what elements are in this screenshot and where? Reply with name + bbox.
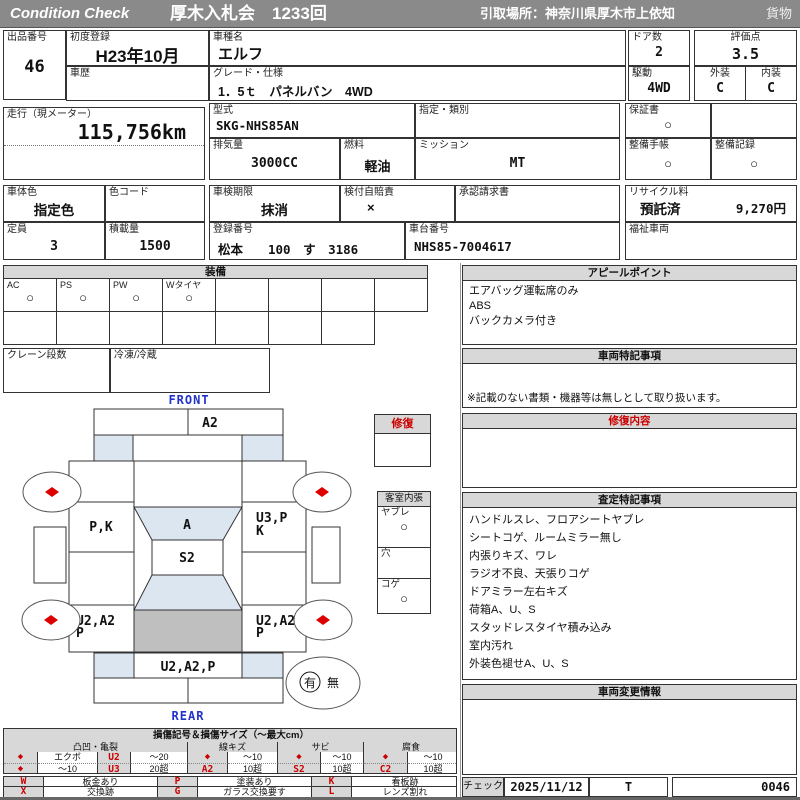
inspector-initial: T (590, 778, 667, 796)
presence-ellipse (286, 657, 360, 709)
legend-code-desc: 塗装あり (198, 777, 312, 787)
presence-no: 無 (327, 675, 339, 690)
auction-title: 厚木入札会 1233回 (170, 0, 327, 27)
equipment-cell-pw: PW ○ (109, 278, 163, 312)
legend-symbol: S2 (278, 763, 321, 774)
exterior-grade-label: 外装 (695, 67, 745, 81)
repair-content-title: 修復内容 (463, 414, 796, 429)
vehicle-changes-panel: 車両変更情報 (462, 684, 797, 775)
right-rear-mark-2: P (256, 626, 264, 641)
body-color-value: 指定色 (4, 199, 104, 219)
cabin-interior-label: 穴 (378, 548, 430, 561)
legend-value: 20超 (131, 763, 188, 774)
assessment-line: 荷箱A、U、S (469, 601, 790, 619)
equipment-mark: ○ (57, 291, 109, 304)
capacity-label: 定員 (4, 223, 104, 237)
equipment-cell-empty (215, 278, 269, 312)
insurance-mark: × (341, 200, 454, 215)
legend-category: 腐食 (364, 742, 457, 752)
damage-legend-title: 損傷記号＆損傷サイズ（～最大cm） (4, 729, 457, 743)
header-bar: Condition Check 厚木入札会 1233回 引取場所：神奈川県厚木市… (0, 0, 800, 28)
history-box: 車歴 (66, 66, 209, 101)
lot-number-box: 出品番号 46 (3, 30, 66, 100)
reefer-label: 冷凍/冷蔵 (111, 349, 269, 363)
legend-code: G (158, 787, 198, 797)
auction-condition-sheet: Condition Check 厚木入札会 1233回 引取場所：神奈川県厚木市… (0, 0, 800, 800)
lot-number-value: 46 (4, 57, 65, 77)
appeal-line: バックカメラ付き (469, 314, 790, 329)
legend-category: 線キズ (188, 742, 278, 752)
assessment-line: 室内汚れ (469, 637, 790, 655)
windshield-right (242, 435, 283, 461)
grade-box: グレード・仕様 1．5ｔ パネルバン 4WD (209, 66, 626, 101)
crane-box: クレーン段数 (3, 348, 110, 393)
equipment-mark: ○ (110, 291, 162, 304)
chassis-number-label: 車台番号 (406, 223, 619, 237)
inspection-box: 車検期限 抹消 (209, 185, 340, 222)
mileage-value: 115,756km (4, 120, 204, 144)
rear-panel-mark: U2,A2,P (161, 660, 216, 675)
doors-label: ドア数 (629, 31, 689, 45)
windshield-left (94, 435, 133, 461)
cabin-interior-mark: ○ (378, 520, 430, 533)
crane-label: クレーン段数 (4, 349, 109, 363)
damage-legend-table: 損傷記号＆損傷サイズ（～最大cm） 凸凹・亀裂 線キズ サビ 腐食 ◆ エクボ … (3, 728, 457, 774)
presence-yes: 有 (304, 676, 316, 690)
displacement-label: 排気量 (210, 139, 339, 153)
legend-value: ～10 (321, 752, 364, 763)
legend-code: X (4, 787, 44, 797)
score-value: 3.5 (695, 45, 796, 63)
equipment-cell-empty (109, 311, 163, 345)
appeal-panel: アピールポイント エアバッグ運転席のみ ABS バックカメラ付き (462, 265, 797, 345)
warranty-box: 保証書 ○ (625, 103, 711, 138)
legend-value: ～10 (408, 752, 457, 763)
color-code-box: 色コード (105, 185, 205, 222)
grade-value: 1．5ｔ パネルバン 4WD (210, 81, 625, 100)
inspection-value: 抹消 (210, 199, 339, 219)
maintenance-record-box: 整備記録 ○ (711, 138, 797, 180)
model-name-box: 車種名 エルフ (209, 30, 626, 66)
assessment-line: 内張りキズ、ワレ (469, 547, 790, 565)
pickup-location: 引取場所：神奈川県厚木市上依知 (480, 0, 675, 27)
classification-label: 指定・類別 (416, 104, 619, 118)
assessment-title: 査定特記事項 (463, 493, 796, 508)
inspector-cell: T (589, 777, 668, 797)
legend-symbol: A2 (188, 763, 228, 774)
repair-content-panel: 修復内容 (462, 413, 797, 488)
legend-code-desc: ガラス交換要す (198, 787, 312, 797)
insurance-label: 検付自賠責 (341, 186, 454, 200)
load-capacity-value: 1500 (106, 239, 204, 254)
doors-box: ドア数 2 (628, 30, 690, 66)
left-side-step (34, 527, 66, 583)
code-legend-table: W 板金あり P 塗装あり K 看板跡 X 交換跡 G ガラス交換要す L レン… (3, 776, 457, 798)
first-registration-value: H23年10月 (67, 42, 208, 67)
model-code-value: SKG-NHS85AN (210, 118, 414, 133)
equipment-mark: ○ (4, 291, 56, 304)
appeal-line: エアバッグ運転席のみ (469, 284, 790, 299)
equipment-cell-empty (56, 311, 110, 345)
drive-box: 駆動 4WD (628, 66, 690, 101)
assessment-line: ドアミラー左右キズ (469, 583, 790, 601)
legend-code: K (312, 777, 352, 787)
rear-label: REAR (172, 709, 205, 723)
brand-logo: Condition Check (10, 0, 129, 27)
cargo-bed-area (134, 610, 242, 652)
maintenance-book-mark: ○ (626, 157, 710, 170)
repair-flag-title: 修復 (375, 415, 430, 434)
legend-value: ～20 (131, 752, 188, 763)
score-box: 評価点 3.5 (694, 30, 797, 66)
legend-symbol: U3 (98, 763, 131, 774)
legend-value: エクボ (38, 752, 98, 763)
lot-number-label: 出品番号 (4, 31, 65, 45)
legend-symbol: U2 (98, 752, 131, 763)
body-color-label: 車体色 (4, 186, 104, 200)
approval-box: 承認請求書 (455, 185, 620, 222)
fuel-value: 軽油 (341, 156, 414, 175)
first-registration-box: 初度登録 H23年10月 (66, 30, 209, 66)
legend-code-desc: 看板跡 (352, 777, 457, 787)
equipment-cell-wtire: Wタイヤ ○ (162, 278, 216, 312)
chassis-number-box: 車台番号 NHS85-7004617 (405, 222, 620, 260)
load-capacity-label: 積載量 (106, 223, 204, 237)
doors-value: 2 (629, 45, 689, 60)
front-panel-mark: A2 (202, 416, 218, 431)
vehicle-notes-note: ※記載のない書類・機器等は無しとして取り扱います。 (467, 390, 726, 405)
legend-symbol: ◆ (188, 752, 228, 763)
legend-symbol: C2 (364, 763, 408, 774)
legend-symbol: ◆ (278, 752, 321, 763)
empty-box (711, 103, 797, 138)
legend-category: 凸凹・亀裂 (4, 742, 188, 752)
legend-category: サビ (278, 742, 364, 752)
vehicle-notes-title: 車両特記事項 (463, 349, 796, 364)
equipment-cell-empty (215, 311, 269, 345)
equipment-cell-empty (374, 278, 428, 312)
registration-number-label: 登録番号 (210, 223, 404, 237)
warranty-mark: ○ (626, 118, 710, 131)
equipment-cell-ps: PS ○ (56, 278, 110, 312)
insurance-box: 検付自賠責 × (340, 185, 455, 222)
assessment-line: 外装色褪せA、U、S (469, 655, 790, 673)
assessment-line: シートコゲ、ルームミラー無し (469, 529, 790, 547)
equipment-cell-empty (321, 278, 375, 312)
assessment-panel: 査定特記事項 ハンドルスレ、フロアシートヤブレ シートコゲ、ルームミラー無し 内… (462, 492, 797, 680)
left-door-mark: P,K (89, 520, 113, 535)
transmission-value: MT (416, 156, 619, 171)
sheet-number: 0046 (673, 778, 796, 796)
drive-value: 4WD (629, 81, 689, 96)
recycle-fee-box: リサイクル料 預託済 9,270円 (625, 185, 797, 222)
right-door-mark-2: K (256, 524, 264, 539)
history-label: 車歴 (67, 67, 208, 81)
color-code-label: 色コード (106, 186, 204, 200)
legend-value: ～10 (228, 752, 278, 763)
front-label: FRONT (168, 393, 209, 407)
model-name-value: エルフ (210, 43, 625, 64)
check-date-cell: 2025/11/12 (504, 777, 589, 797)
inspection-label: 車検期限 (210, 186, 339, 200)
grade-label: グレード・仕様 (210, 67, 625, 81)
column-divider (460, 263, 461, 797)
displacement-box: 排気量 3000CC (209, 138, 340, 180)
displacement-value: 3000CC (210, 156, 339, 171)
equipment-cell-empty (268, 278, 322, 312)
vehicle-notes-panel: 車両特記事項 ※記載のない書類・機器等は無しとして取り扱います。 (462, 348, 797, 408)
check-label-cell: チェック (462, 777, 504, 797)
capacity-value: 3 (4, 239, 104, 254)
registration-number-box: 登録番号 松本 100 す 3186 (209, 222, 405, 260)
assessment-line: ハンドルスレ、フロアシートヤブレ (469, 511, 790, 529)
legend-value: 10超 (408, 763, 457, 774)
cabin-interior-row-burn: コゲ ○ (378, 579, 430, 614)
cabin-interior-row-hole: 穴 (378, 548, 430, 579)
score-label: 評価点 (695, 31, 796, 45)
equipment-cell-empty (321, 311, 375, 345)
cab-front-mark: A (183, 518, 191, 533)
check-date: 2025/11/12 (505, 778, 588, 796)
rear-right-corner (242, 653, 283, 678)
equipment-cell-empty (3, 311, 57, 345)
appeal-title: アピールポイント (463, 266, 796, 281)
vehicle-category: 貨物 (766, 0, 792, 27)
fuel-box: 燃料 軽油 (340, 138, 415, 180)
vehicle-changes-title: 車両変更情報 (463, 685, 796, 700)
legend-code-desc: 交換跡 (44, 787, 158, 797)
chassis-number-value: NHS85-7004617 (406, 239, 619, 254)
interior-grade-label: 内装 (746, 67, 796, 81)
registration-number-value: 松本 100 す 3186 (210, 239, 404, 258)
legend-code: P (158, 777, 198, 787)
body-color-box: 車体色 指定色 (3, 185, 105, 222)
fuel-label: 燃料 (341, 139, 414, 153)
classification-box: 指定・類別 (415, 103, 620, 138)
interior-grade-value: C (746, 81, 796, 96)
exterior-grade-value: C (695, 81, 745, 96)
legend-value: ～10 (38, 763, 98, 774)
cabin-interior-box: 客室内張 ヤブレ ○ 穴 コゲ ○ (377, 491, 431, 614)
appeal-line: ABS (469, 299, 790, 314)
check-label: チェック (463, 778, 503, 796)
equipment-mark: ○ (163, 291, 215, 304)
legend-code: W (4, 777, 44, 787)
legend-symbol: ◆ (4, 763, 38, 774)
legend-symbol: ◆ (364, 752, 408, 763)
equipment-cell-empty (268, 311, 322, 345)
maintenance-record-mark: ○ (712, 157, 796, 170)
load-capacity-box: 積載量 1500 (105, 222, 205, 260)
legend-symbol: ◆ (4, 752, 38, 763)
cab-rear-area (134, 575, 242, 610)
assessment-line: スタッドレスタイヤ積み込み (469, 619, 790, 637)
reefer-box: 冷凍/冷蔵 (110, 348, 270, 393)
legend-value: 10超 (321, 763, 364, 774)
welfare-vehicle-box: 福祉車両 (625, 222, 797, 260)
cabin-interior-row-tear: ヤブレ ○ (378, 507, 430, 548)
sheet-number-cell: 0046 (672, 777, 797, 797)
cabin-interior-mark: ○ (378, 592, 430, 605)
model-code-box: 型式 SKG-NHS85AN (209, 103, 415, 138)
right-side-step (312, 527, 340, 583)
equipment-title: 装備 (3, 265, 428, 279)
equipment-cell-ac: AC ○ (3, 278, 57, 312)
welfare-vehicle-label: 福祉車両 (626, 223, 796, 237)
interior-grade-box: 内装 C (745, 66, 797, 101)
recycle-fee-value: 9,270円 (736, 198, 786, 218)
legend-value: 10超 (228, 763, 278, 774)
legend-code-desc: レンズ割れ (352, 787, 457, 797)
equipment-cell-empty (162, 311, 216, 345)
capacity-box: 定員 3 (3, 222, 105, 260)
repair-flag-box: 修復 (374, 414, 431, 467)
cabin-interior-label: ヤブレ (378, 507, 430, 520)
assessment-line: ラジオ不良、天張りコゲ (469, 565, 790, 583)
model-code-label: 型式 (210, 104, 414, 118)
recycle-status: 預託済 (640, 198, 681, 218)
roof-mark: S2 (179, 551, 195, 566)
cabin-interior-label: コゲ (378, 579, 430, 592)
maintenance-record-label: 整備記録 (712, 139, 796, 153)
legend-code: L (312, 787, 352, 797)
approval-label: 承認請求書 (456, 186, 619, 200)
drive-label: 駆動 (629, 67, 689, 81)
warranty-label: 保証書 (626, 104, 710, 118)
transmission-label: ミッション (416, 139, 619, 153)
maintenance-book-box: 整備手帳 ○ (625, 138, 711, 180)
exterior-grade-box: 外装 C (694, 66, 746, 101)
cabin-interior-title: 客室内張 (378, 492, 430, 507)
maintenance-book-label: 整備手帳 (626, 139, 710, 153)
legend-code-desc: 板金あり (44, 777, 158, 787)
mileage-box: 走行（現メーター） 115,756km (3, 107, 205, 180)
transmission-box: ミッション MT (415, 138, 620, 180)
rear-left-corner (94, 653, 134, 678)
